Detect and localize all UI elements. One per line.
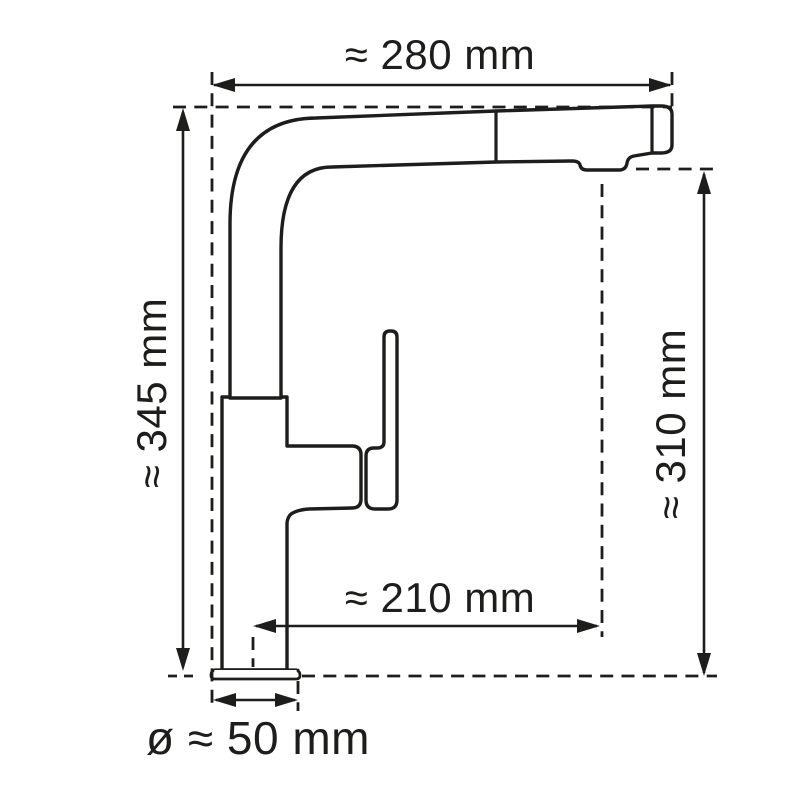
dimension-right-height: [697, 171, 711, 676]
dimension-label-left-height: ≈ 345 mm: [131, 298, 173, 488]
faucet-body: [222, 397, 361, 670]
dimension-label-top-width: ≈ 280 mm: [345, 34, 535, 76]
dimension-label-spout-reach: ≈ 210 mm: [345, 577, 535, 619]
dimension-label-base-diameter: ø ≈ 50 mm: [146, 715, 370, 761]
faucet-neck-and-spout: [230, 106, 672, 398]
dimension-top-width: [212, 78, 672, 92]
base-flange-plate: [211, 670, 300, 679]
faucet-handle-lever: [366, 331, 397, 509]
dimension-spout-reach: [253, 619, 600, 633]
dimension-label-right-height: ≈ 310 mm: [650, 329, 692, 519]
dimension-base-diameter: [213, 693, 298, 707]
dimension-left-height: [176, 108, 190, 671]
technical-drawing-canvas: ≈ 280 mm ≈ 345 mm ≈ 310 mm ≈ 210 mm ø ≈ …: [0, 0, 800, 800]
